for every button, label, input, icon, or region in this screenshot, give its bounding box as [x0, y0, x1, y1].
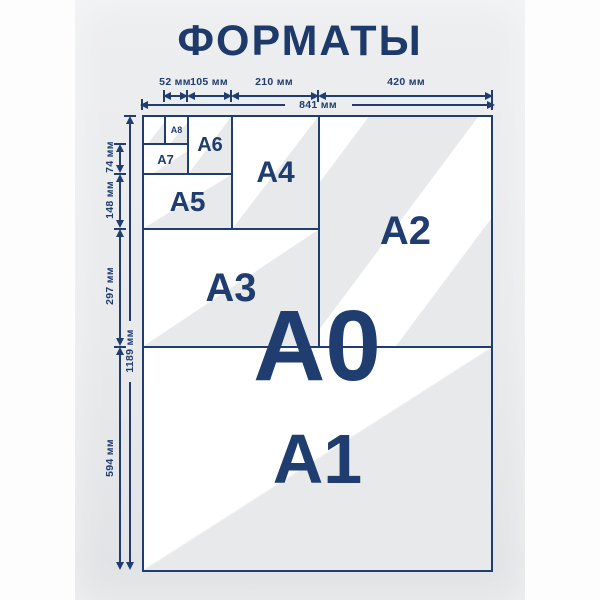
dim-arrow-420 — [320, 95, 491, 97]
dim-height-a7: 74 мм — [104, 141, 116, 173]
cell-a4: A4 — [233, 117, 318, 228]
dim-arrow-1189-top — [129, 118, 131, 321]
page-title: ФОРМАТЫ — [0, 17, 600, 66]
dim-arrow-148 — [119, 176, 121, 226]
dim-width-a4: 210 мм — [255, 76, 293, 88]
dim-arrow-841-left — [142, 104, 285, 106]
dim-arrow-841-right — [352, 104, 493, 106]
cell-blank — [144, 117, 164, 143]
divider-line — [144, 173, 233, 175]
dim-tick — [114, 173, 126, 175]
dim-width-a6: 105 мм — [190, 76, 228, 88]
dim-arrow-1189-bottom — [129, 382, 131, 568]
dim-arrow-210 — [233, 95, 317, 97]
dim-arrow-52 — [165, 95, 186, 97]
dim-height-a1: 594 мм — [104, 439, 116, 477]
cell-a5: A5 — [144, 175, 231, 228]
dim-arrow-74 — [119, 146, 121, 171]
divider-line — [187, 117, 189, 175]
dim-tick — [163, 90, 165, 102]
divider-line — [144, 143, 189, 145]
dim-height-a3: 297 мм — [104, 267, 116, 305]
dim-width-a2: 420 мм — [387, 76, 425, 88]
divider-line — [164, 117, 166, 145]
dim-arrow-594 — [119, 349, 121, 568]
dim-arrow-105 — [189, 95, 230, 97]
dim-height-a5: 148 мм — [104, 181, 116, 219]
dim-width-total: 841 мм — [299, 99, 337, 111]
formats-infographic: ФОРМАТЫ 52 мм 105 мм 210 мм 420 мм 841 м… — [0, 0, 600, 600]
divider-line — [144, 228, 320, 230]
dim-arrow-297 — [119, 231, 121, 344]
dim-tick — [186, 90, 188, 102]
cell-a7: A7 — [144, 145, 187, 173]
cell-a0-label: A0 — [253, 296, 381, 396]
dim-width-a8: 52 мм — [159, 76, 191, 88]
paper-sheet-diagram: A8 A7 A6 A5 A4 A3 A2 A1 A0 — [142, 115, 493, 572]
dim-height-total: 1189 мм — [124, 329, 136, 372]
cell-a8: A8 — [166, 117, 187, 143]
cell-a6: A6 — [189, 117, 231, 173]
dim-tick — [114, 228, 126, 230]
dim-tick — [230, 90, 232, 102]
